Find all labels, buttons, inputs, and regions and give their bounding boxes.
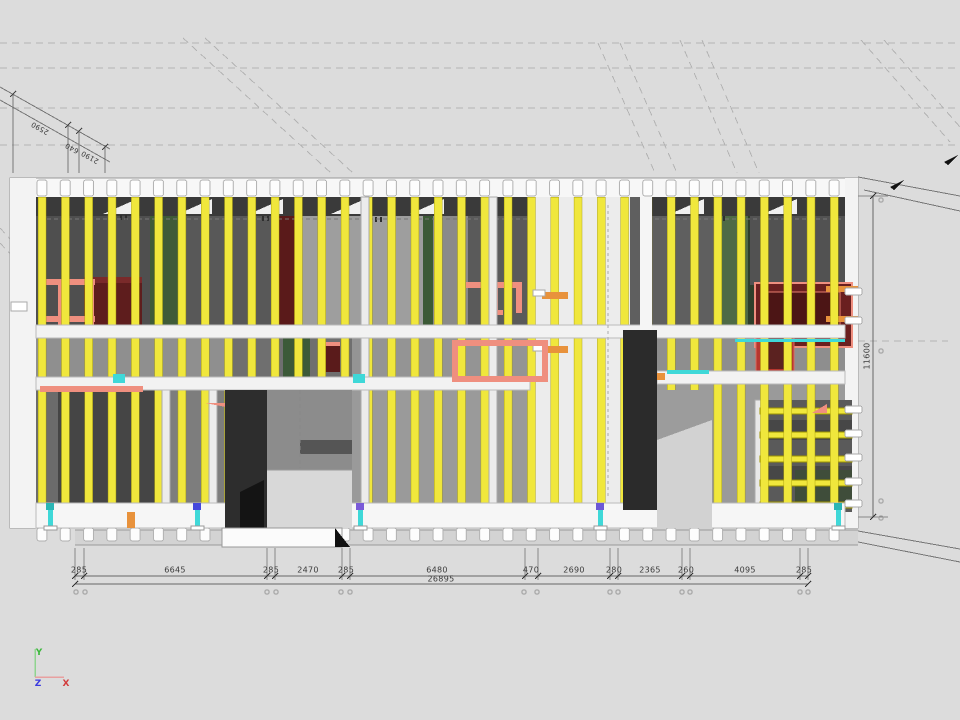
x-axis-label: X bbox=[63, 679, 70, 689]
dim-bottom-0: 285 bbox=[71, 566, 87, 575]
building-model bbox=[10, 178, 862, 547]
dim-bottom-11: 4095 bbox=[734, 566, 756, 575]
stud-field bbox=[36, 197, 845, 503]
y-axis-label: Y bbox=[36, 648, 43, 658]
dim-bottom-2: 285 bbox=[263, 566, 279, 575]
z-axis-label: Z bbox=[35, 679, 42, 689]
dim-bottom-1: 6645 bbox=[164, 566, 186, 575]
cad-viewport[interactable]: 285 6645 285 2470 285 6480 470 2690 280 … bbox=[0, 0, 960, 720]
dim-bottom-4: 285 bbox=[338, 566, 354, 575]
opening-stairwell bbox=[225, 390, 352, 530]
bottom-plate-band bbox=[36, 503, 845, 528]
dim-bottom-total: 26895 bbox=[428, 575, 455, 584]
dim-bottom-6: 470 bbox=[523, 566, 539, 575]
dim-bottom-3: 2470 bbox=[297, 566, 319, 575]
dim-bottom-5: 6480 bbox=[426, 566, 448, 575]
porch-step bbox=[222, 528, 350, 547]
cad-canvas[interactable] bbox=[0, 0, 960, 720]
dim-bottom-12: 285 bbox=[796, 566, 812, 575]
dim-bottom-8: 280 bbox=[606, 566, 622, 575]
stud-tabs-top bbox=[36, 179, 845, 197]
dim-bottom-10: 260 bbox=[678, 566, 694, 575]
dim-bottom-7: 2690 bbox=[563, 566, 585, 575]
dim-bottom-9: 2365 bbox=[639, 566, 661, 575]
stud-tabs-bottom bbox=[36, 528, 845, 543]
dim-right-height: 11600 bbox=[863, 343, 872, 370]
